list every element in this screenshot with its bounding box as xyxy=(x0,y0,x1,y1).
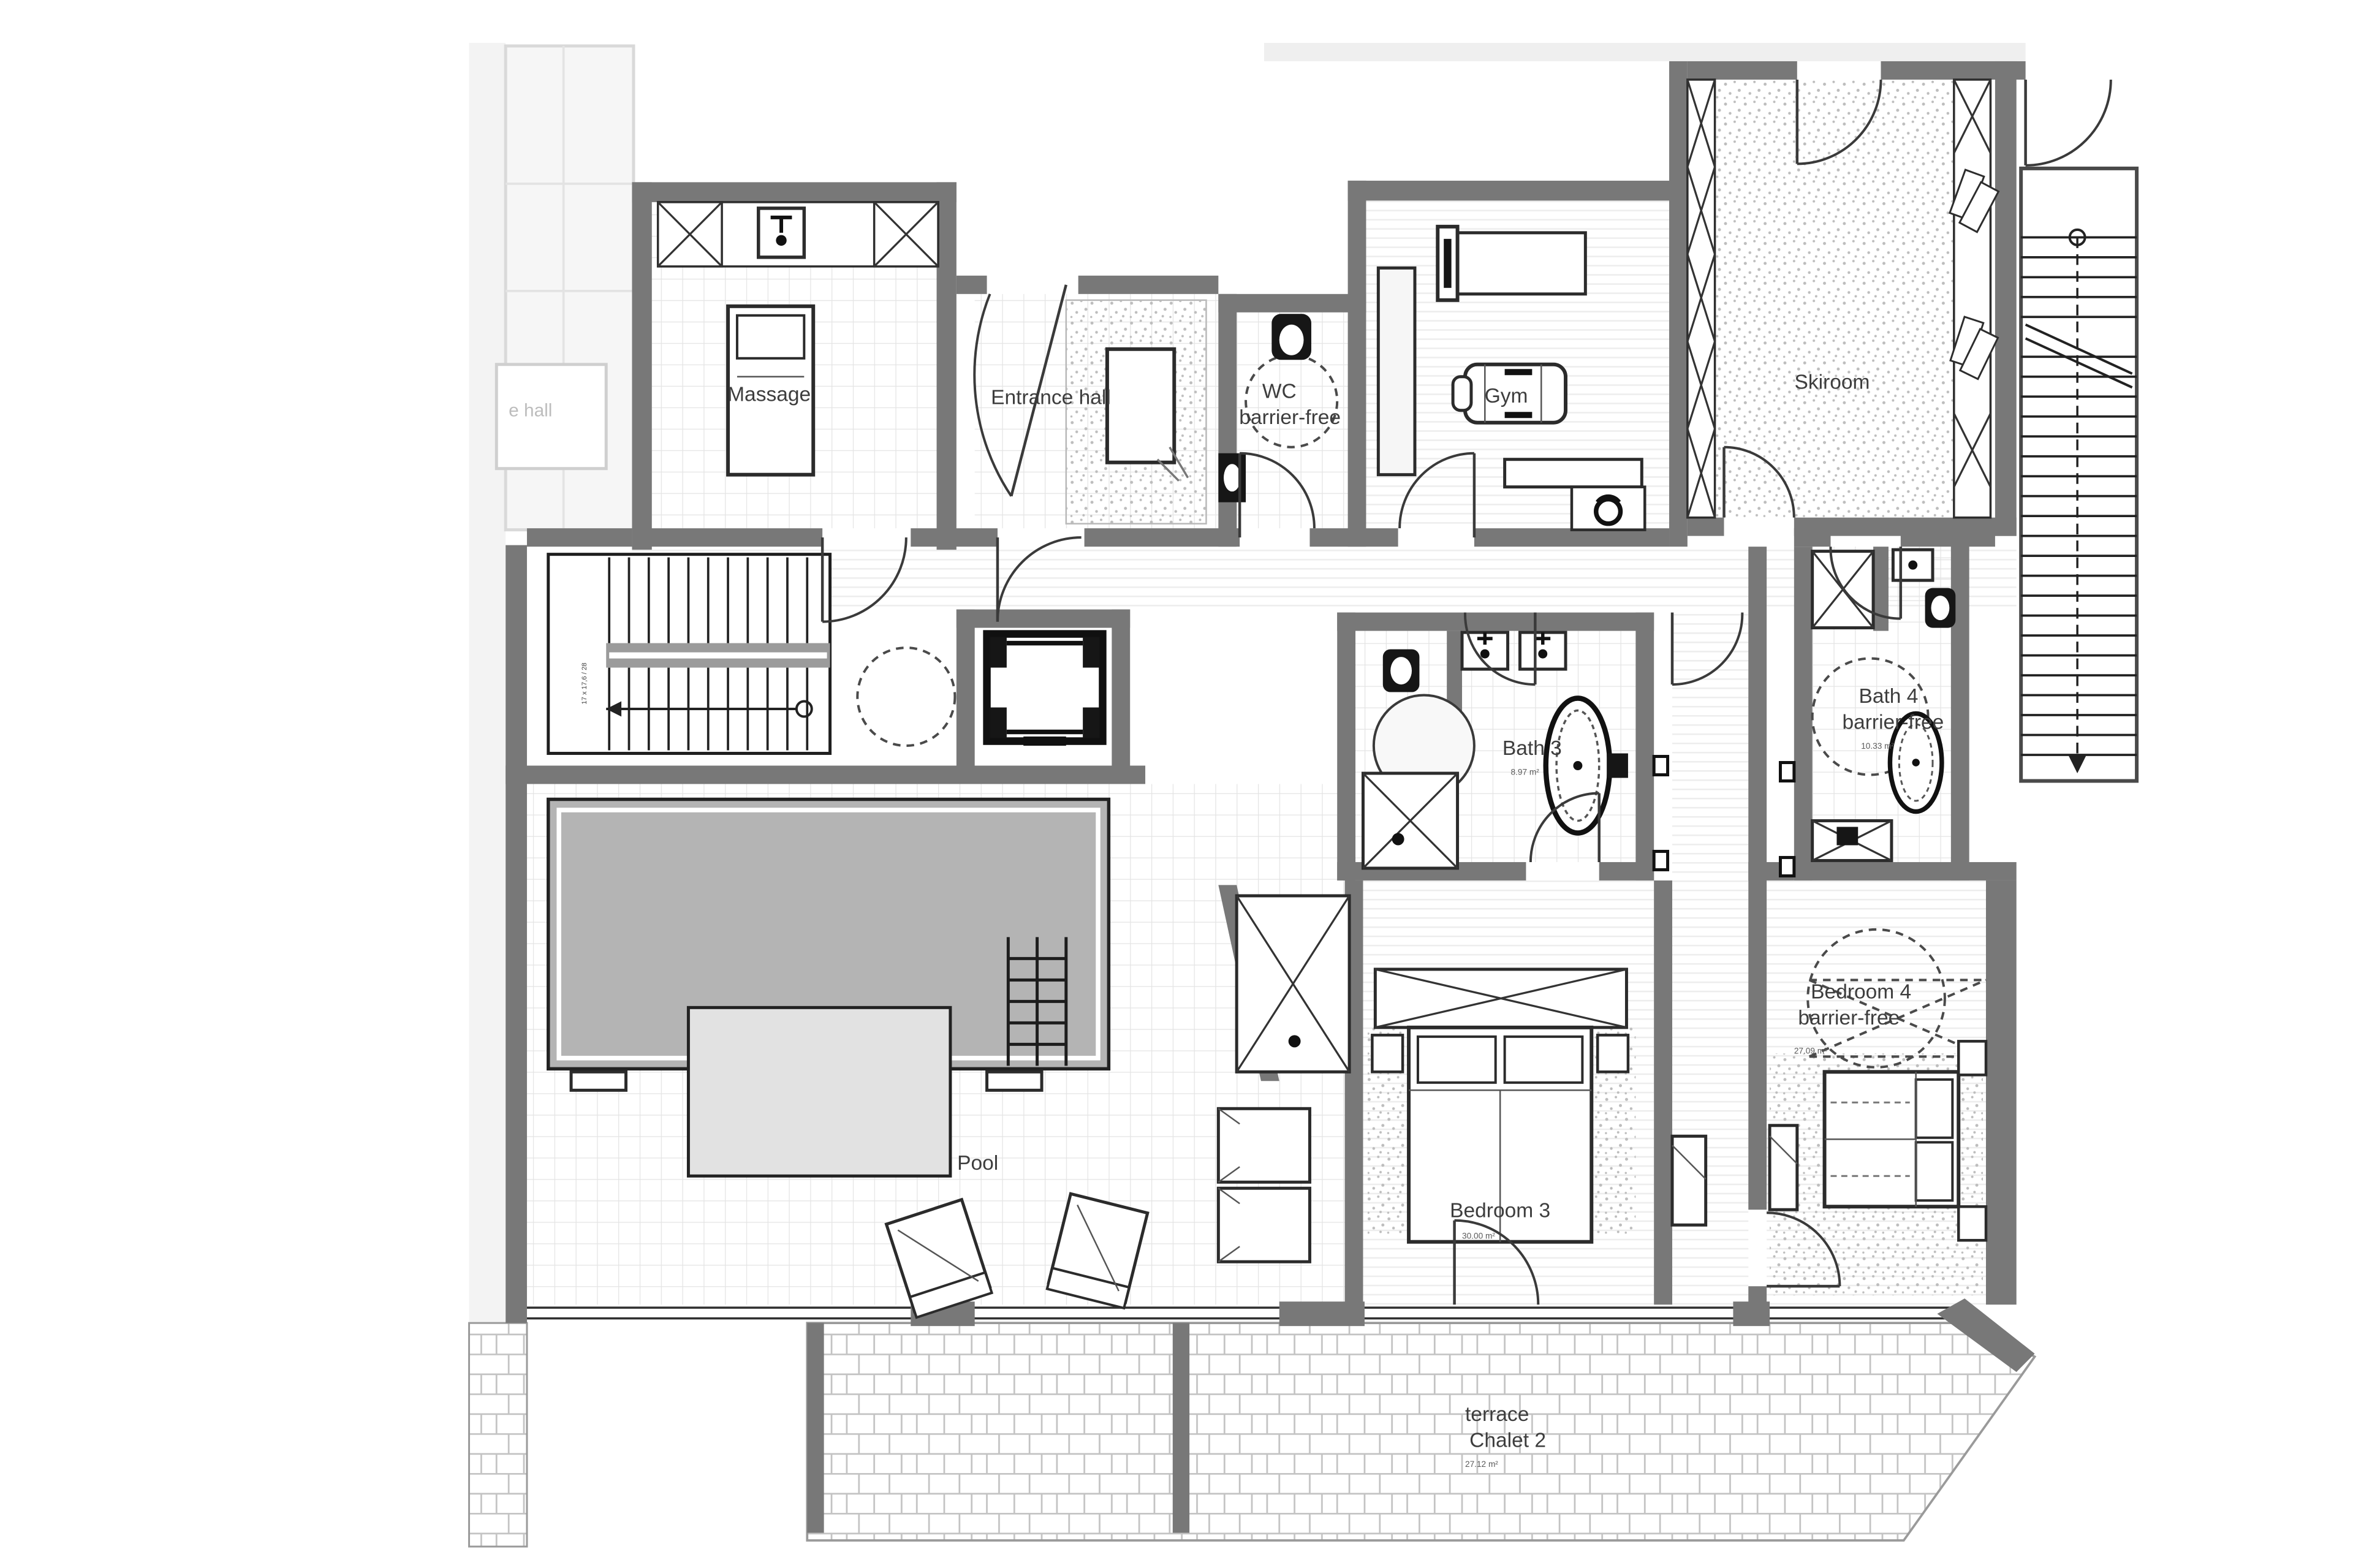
massage-pillow xyxy=(737,316,804,358)
bath3-area: 8.97 m² xyxy=(1511,767,1540,776)
wc-label-2: barrier-free xyxy=(1239,406,1341,429)
tv-console xyxy=(1770,1126,1797,1210)
bedroom4-area: 27.09 m² xyxy=(1794,1046,1827,1055)
entrance-label: Entrance hall xyxy=(991,387,1111,409)
nightstand xyxy=(1958,1206,1986,1240)
neighbor-room-label: e hall xyxy=(509,401,552,421)
terrace-label: terrace xyxy=(1465,1403,1529,1426)
stair-left: 17 x 17,6 / 28 xyxy=(548,555,830,754)
floor-plan-canvas: e hall terrace Chalet 2 27.12 m² xyxy=(0,0,2353,1568)
turning-circle-hall xyxy=(857,648,955,746)
vanity xyxy=(1813,820,1892,860)
nightstand xyxy=(1597,1035,1628,1072)
gym-shelf xyxy=(1505,460,1642,487)
pool-step-grip xyxy=(571,1072,626,1090)
closet xyxy=(1218,1188,1309,1262)
door-stair-right xyxy=(2026,80,2111,165)
elevator xyxy=(987,634,1103,741)
bedroom3-label: Bedroom 3 xyxy=(1450,1200,1550,1222)
bedroom3-area: 30.00 m² xyxy=(1462,1232,1495,1241)
terrace-paving xyxy=(807,1323,2034,1540)
terrace-area: 27.12 m² xyxy=(1465,1460,1498,1469)
pool-platform xyxy=(688,1007,950,1176)
bedroom4-label-2: barrier-free xyxy=(1798,1007,1900,1029)
sink-icon xyxy=(1893,550,1933,580)
bath3-label: Bath 3 xyxy=(1502,737,1562,760)
wardrobe xyxy=(1375,969,1626,1028)
steam-shower xyxy=(1237,896,1349,1072)
shower xyxy=(1363,773,1457,868)
stair-right xyxy=(2021,169,2137,781)
terrace-label-2: Chalet 2 xyxy=(1469,1429,1546,1452)
skiroom-right-wall xyxy=(1950,80,1999,518)
wc-label-1: WC xyxy=(1262,381,1297,403)
tv-console xyxy=(1672,1136,1706,1225)
skiroom-label: Skiroom xyxy=(1794,371,1870,394)
gym-treadmill xyxy=(1438,227,1585,300)
gym-label: Gym xyxy=(1485,385,1528,407)
bath4-label-1: Bath 4 xyxy=(1859,685,1918,708)
sink-icon xyxy=(1218,453,1246,502)
sink-icon xyxy=(1520,632,1566,669)
bedroom4-label-1: Bedroom 4 xyxy=(1811,980,1911,1003)
massage-label: Massage xyxy=(727,384,811,406)
terrace-left-strip xyxy=(469,1323,527,1547)
terrace-wall-left xyxy=(807,1323,824,1532)
neighbor-top-strip xyxy=(1264,43,2026,61)
toilet-icon xyxy=(1925,588,1956,628)
pool-label: Pool xyxy=(957,1152,998,1175)
nightstand xyxy=(1958,1041,1986,1075)
skiroom-left-wall xyxy=(1688,80,1715,518)
closet xyxy=(1218,1108,1309,1182)
bath4-label-2: barrier-free xyxy=(1842,711,1944,733)
entrance-bench xyxy=(1107,349,1174,463)
massage-counter xyxy=(658,202,938,267)
nightstand xyxy=(1372,1035,1403,1072)
skiroom: Skiroom xyxy=(1794,371,1870,394)
stair-annotation: 17 x 17,6 / 28 xyxy=(581,662,588,704)
massage-room: Massage xyxy=(727,306,813,475)
neighbor-strip xyxy=(469,43,506,1323)
floor-plan-page: e hall terrace Chalet 2 27.12 m² xyxy=(0,0,2353,1568)
gym-kettlebell xyxy=(1572,487,1645,530)
bed-double xyxy=(1825,1072,1959,1206)
gym-bench xyxy=(1378,268,1415,474)
pool-step-grip xyxy=(987,1072,1042,1090)
terrace: terrace Chalet 2 27.12 m² xyxy=(469,1323,2035,1547)
terrace-wall-right xyxy=(1173,1323,1189,1532)
bath4-area: 10.33 m² xyxy=(1861,741,1894,751)
toilet-icon xyxy=(1383,650,1420,692)
toilet-icon xyxy=(1271,314,1311,360)
